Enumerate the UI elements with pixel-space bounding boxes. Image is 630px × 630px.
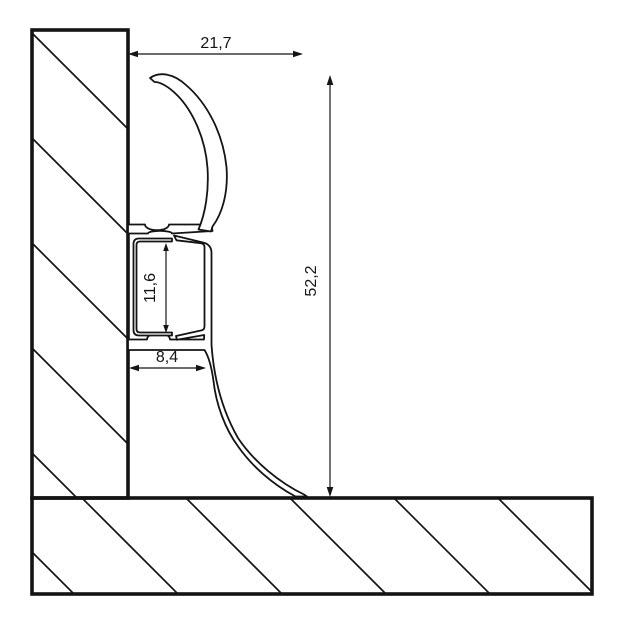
arrowhead-down: [327, 487, 334, 497]
floor-section: [32, 498, 592, 594]
arrowhead-right: [196, 365, 206, 372]
dim-label-top-width: 21,7: [200, 35, 231, 52]
arrowhead-up: [327, 75, 334, 85]
dim-top-width: 21,7: [128, 35, 303, 57]
technical-diagram: 21,7 52,2 11,6 8,4: [0, 0, 630, 630]
dim-channel-height: 11,6: [142, 243, 169, 333]
arrowhead-left: [129, 365, 139, 372]
arrowhead-right: [293, 51, 303, 58]
dim-base-depth: 8,4: [129, 349, 206, 371]
dim-label-base-depth: 8,4: [156, 349, 178, 366]
diagram-canvas: 21,7 52,2 11,6 8,4: [0, 0, 630, 630]
profile-top-lip: [150, 74, 227, 231]
dim-label-total-height: 52,2: [303, 265, 320, 296]
wall-section: [32, 30, 128, 498]
floor-hatching: [32, 498, 598, 600]
dim-label-channel-height: 11,6: [142, 273, 159, 303]
wall-hatching: [32, 33, 128, 549]
arrowhead-up: [163, 243, 169, 251]
dim-total-height: 52,2: [303, 75, 333, 497]
